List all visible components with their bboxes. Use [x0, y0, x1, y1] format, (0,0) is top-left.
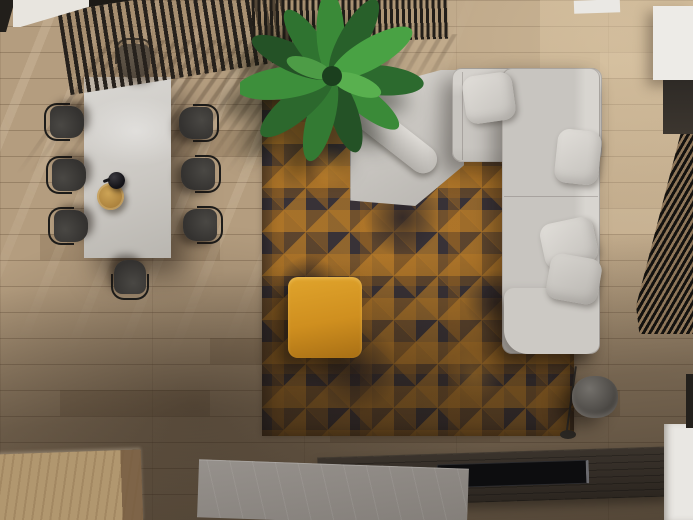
floor-plank — [60, 390, 210, 416]
wood-bench — [0, 449, 143, 520]
throw-pillow — [461, 71, 517, 125]
dining-chair-right-2 — [179, 153, 221, 195]
plant-center — [322, 66, 342, 86]
potted-plant — [240, 0, 425, 165]
throw-pillow — [544, 252, 603, 306]
dining-chair-left-2 — [46, 154, 88, 196]
dining-chair-left-3 — [48, 205, 90, 247]
dark-wall-sliver — [686, 374, 693, 428]
dining-chair-bottom — [109, 258, 151, 300]
white-cabinet — [653, 6, 693, 80]
dining-table — [84, 77, 171, 258]
floor-lamp-shade — [572, 376, 618, 418]
chair-seat — [183, 209, 217, 241]
white-platform — [664, 424, 693, 520]
dining-chair-left-1 — [44, 101, 86, 143]
chair-seat — [50, 106, 84, 138]
dining-chair-right-3 — [181, 204, 223, 246]
stone-slab — [197, 459, 469, 520]
chair-seat — [181, 158, 215, 190]
white-counter-sliver — [574, 0, 620, 14]
chair-seat — [54, 210, 88, 242]
throw-pillow — [553, 128, 602, 186]
sofa-seam — [504, 196, 598, 197]
dining-chair-right-1 — [177, 102, 219, 144]
floor-lamp-base — [560, 430, 576, 439]
living-room-scene — [0, 0, 693, 520]
chair-seat — [114, 260, 146, 294]
chair-seat — [52, 159, 86, 191]
ottoman-pouf — [288, 277, 362, 358]
chair-seat — [179, 107, 213, 139]
teapot — [108, 172, 125, 189]
dark-panel — [663, 80, 693, 134]
